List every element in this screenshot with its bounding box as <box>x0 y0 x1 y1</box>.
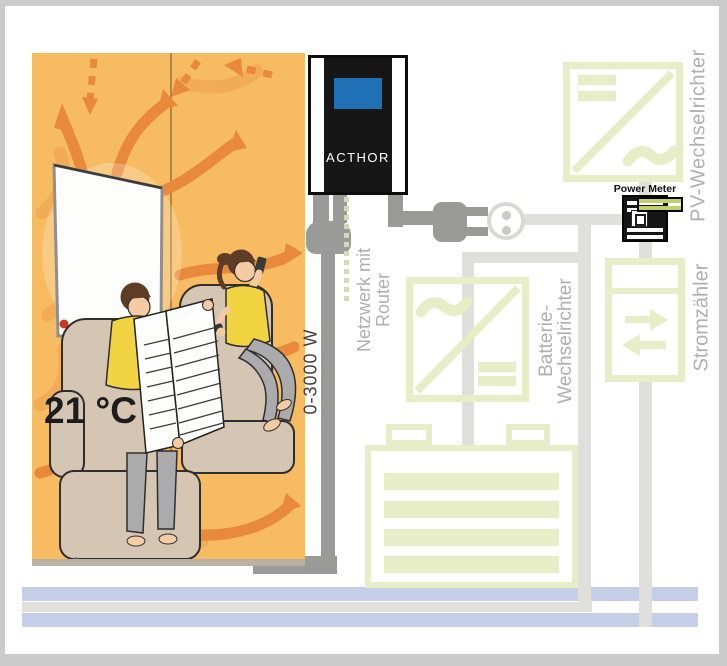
wire-powermeter-to-gridmeter <box>639 241 652 259</box>
power-meter-label: Power Meter <box>598 183 692 195</box>
flow-right-arrow-icon <box>625 316 650 323</box>
grid-meter-box <box>605 258 685 382</box>
flow-right-arrowhead <box>650 309 668 331</box>
temperature-label: 21 °C <box>44 390 137 431</box>
wire-branch-horizontal <box>462 252 591 263</box>
network-dotted-line <box>344 197 349 305</box>
battery-box <box>365 445 578 588</box>
power-meter-port-icon <box>631 210 648 227</box>
label-battery-inverter: Batterie- Wechselrichter <box>537 266 575 416</box>
acthor-device: ACTHOR <box>308 55 408 195</box>
battery-cell-bar <box>384 529 559 546</box>
battery-terminal <box>506 424 550 446</box>
label-pv-inverter: PV-Wechselrichter <box>688 46 711 226</box>
dc-symbol <box>578 75 616 101</box>
flow-left-arrow-icon <box>640 341 666 349</box>
wire-acthor-to-heater <box>321 252 335 574</box>
wire-acthor-right-horizontal <box>388 211 438 225</box>
battery-terminal <box>386 424 432 446</box>
plug-left-prong <box>313 195 329 223</box>
dc-symbol <box>478 362 516 386</box>
battery-cell-bar <box>384 501 559 518</box>
label-network-router: Netzwerk mit Router <box>355 220 393 380</box>
plug-right-prong <box>465 207 488 216</box>
acthor-label: ACTHOR <box>324 150 392 165</box>
socket-icon <box>487 202 525 240</box>
flow-left-arrowhead <box>622 334 640 356</box>
battery-inverter-box <box>406 277 529 402</box>
battery-cell-bar <box>384 556 559 573</box>
wire-bottom-bus <box>22 602 592 612</box>
blue-band-bottom <box>22 613 698 627</box>
power-meter-dotted-line <box>637 197 683 212</box>
blue-band-top <box>22 587 698 601</box>
wire-riser <box>578 214 591 606</box>
label-grid-meter: Stromzähler <box>691 258 714 378</box>
ac-symbol <box>421 302 467 312</box>
newspaper <box>134 299 224 453</box>
room-floor-line <box>32 559 305 566</box>
room-illustration: 21 °C <box>32 53 305 566</box>
ac-symbol <box>628 151 674 161</box>
pv-inverter-box <box>563 62 683 182</box>
plug-right-icon <box>433 202 467 242</box>
label-power-range: 0-3000 W <box>301 317 322 427</box>
plug-right-prong <box>465 227 488 236</box>
wire-gridmeter-down <box>639 381 652 627</box>
acthor-front-panel: ACTHOR <box>324 58 392 192</box>
acthor-screen <box>334 78 382 109</box>
battery-cell-bar <box>384 473 559 490</box>
wire-socket-to-meter <box>521 214 622 225</box>
